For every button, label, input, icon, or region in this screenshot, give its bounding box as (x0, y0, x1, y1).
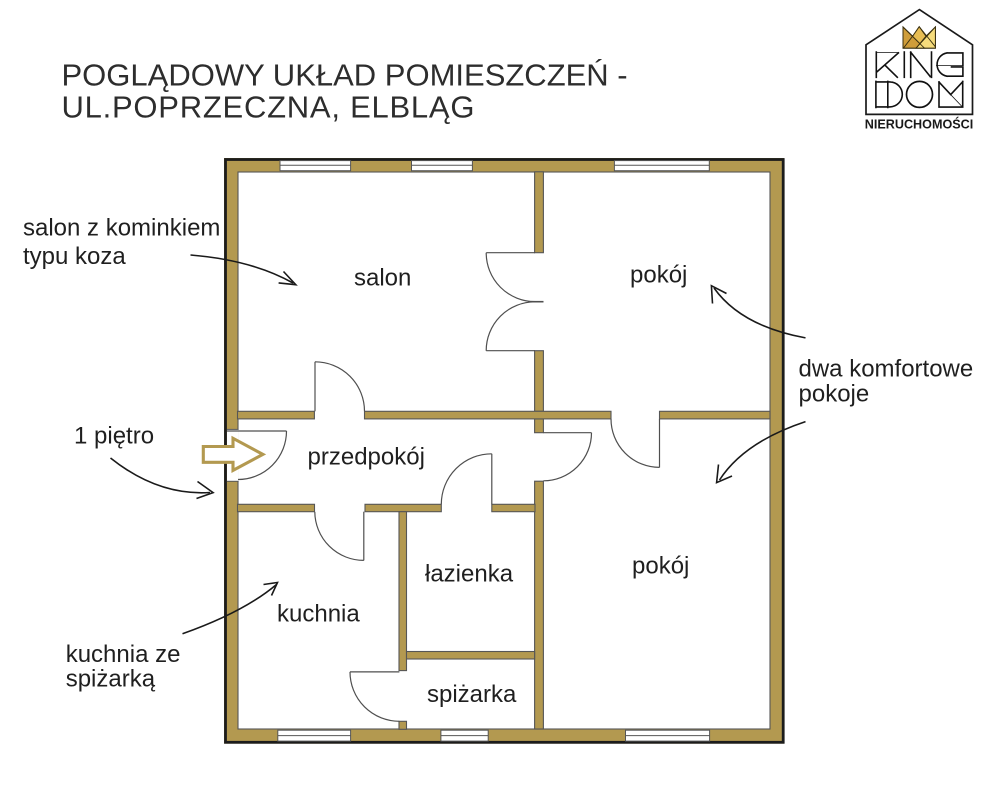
svg-text:salon: salon (354, 265, 411, 292)
svg-text:pokoje: pokoje (799, 381, 870, 408)
svg-text:pokój: pokój (632, 553, 689, 580)
svg-text:przedpokój: przedpokój (308, 444, 425, 471)
svg-text:NIERUCHOMOŚCI: NIERUCHOMOŚCI (865, 117, 974, 132)
svg-text:spiżarka: spiżarka (427, 681, 517, 708)
svg-text:pokój: pokój (630, 262, 687, 289)
svg-text:kuchnia: kuchnia (277, 600, 360, 627)
svg-text:1 piętro: 1 piętro (74, 423, 154, 450)
svg-text:UL.POPRZECZNA, ELBLĄG: UL.POPRZECZNA, ELBLĄG (62, 89, 476, 124)
svg-text:kuchnia ze: kuchnia ze (66, 641, 181, 668)
svg-text:POGLĄDOWY UKŁAD POMIESZCZEŃ -: POGLĄDOWY UKŁAD POMIESZCZEŃ - (62, 57, 628, 92)
svg-text:dwa komfortowe: dwa komfortowe (799, 356, 974, 383)
svg-text:łazienka: łazienka (425, 561, 514, 588)
svg-text:salon z kominkiem: salon z kominkiem (23, 214, 220, 241)
svg-text:spiżarką: spiżarką (66, 666, 156, 693)
svg-text:typu koza: typu koza (23, 243, 126, 270)
